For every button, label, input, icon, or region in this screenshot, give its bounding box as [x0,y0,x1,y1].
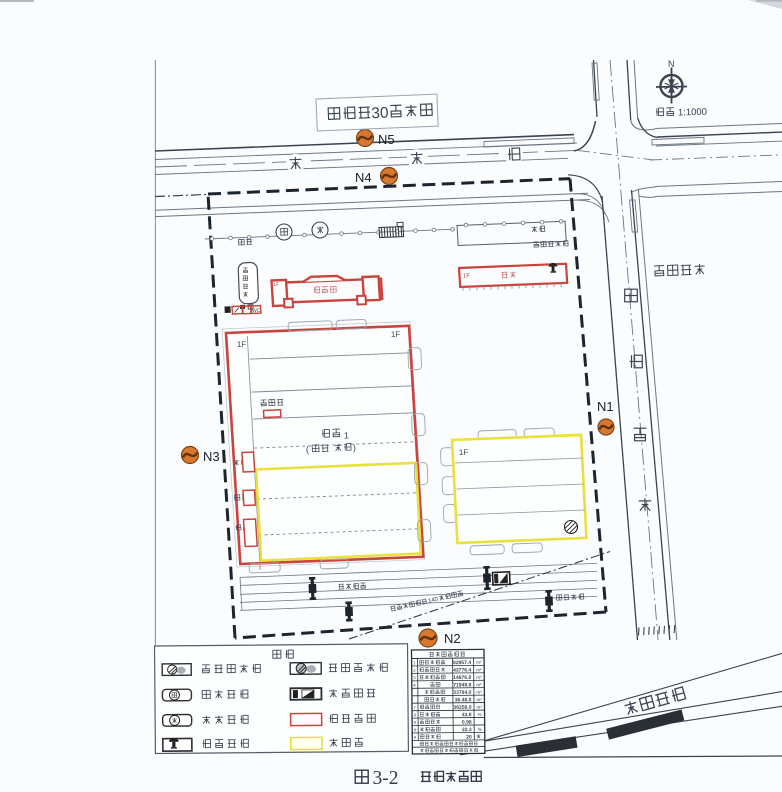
svg-text:): ) [353,442,356,452]
svg-text:1:1000: 1:1000 [678,107,707,119]
svg-text:1F: 1F [459,448,469,457]
svg-text:20: 20 [466,734,472,740]
svg-text:43776.4: 43776.4 [453,667,471,673]
svg-text:36.48.8: 36.48.8 [455,697,472,703]
svg-text:1F: 1F [273,282,279,288]
svg-text:N: N [668,59,675,69]
svg-text:m²: m² [476,667,482,672]
svg-text:82957.4: 82957.4 [453,660,471,666]
svg-text:N5: N5 [378,132,395,147]
svg-text:%: % [478,727,482,732]
svg-text:71948.8: 71948.8 [453,682,471,688]
svg-text:N2: N2 [444,631,461,646]
svg-text:1F: 1F [391,330,401,339]
svg-text:1F: 1F [463,273,471,279]
svg-text:m²: m² [476,697,482,702]
svg-text:m²: m² [476,660,482,665]
svg-text:N4: N4 [355,170,372,185]
svg-text:m²: m² [476,705,482,710]
svg-text:33784.0: 33784.0 [453,690,471,696]
svg-text:WC: WC [252,308,261,314]
svg-text:m²: m² [476,675,482,680]
svg-text:1F: 1F [237,340,247,349]
svg-text:0.98: 0.98 [462,720,472,726]
svg-text:%: % [478,712,482,717]
svg-text:30: 30 [371,105,389,123]
svg-text:m²: m² [476,682,482,687]
svg-text:22.3: 22.3 [462,727,472,733]
svg-text:N3: N3 [203,449,220,464]
svg-text:3-2: 3-2 [373,768,399,789]
svg-text:36258.0: 36258.0 [453,705,471,711]
svg-text:(: ( [306,444,309,454]
svg-text:43.8: 43.8 [462,712,472,718]
svg-text:m²: m² [476,690,482,695]
svg-text:1: 1 [344,430,349,440]
svg-text:N1: N1 [597,399,614,414]
svg-text:14876.8: 14876.8 [453,675,471,681]
